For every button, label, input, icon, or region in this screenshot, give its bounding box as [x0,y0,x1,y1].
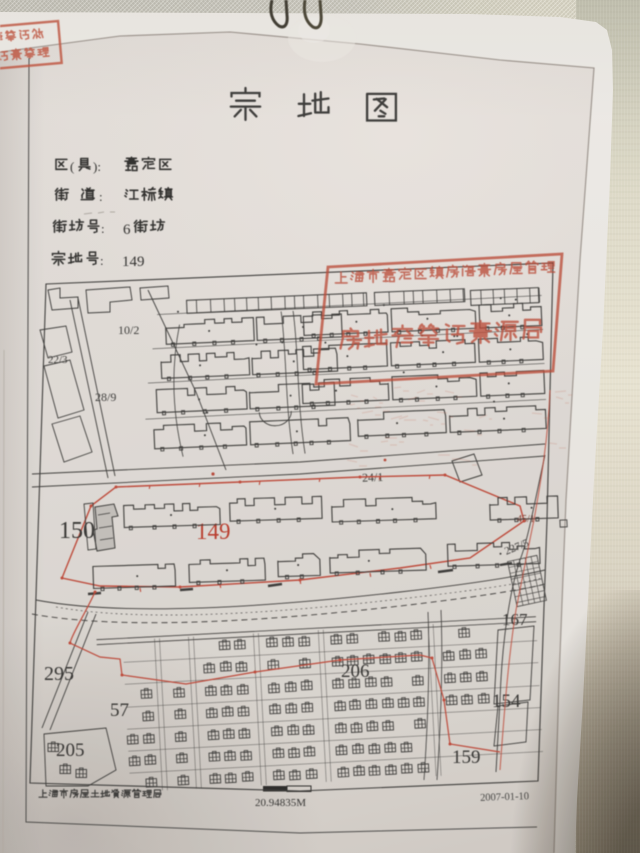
svg-text:295: 295 [44,663,74,685]
svg-text::: : [100,253,104,268]
svg-text:10/2: 10/2 [118,323,139,337]
svg-text:206: 206 [341,661,370,682]
svg-text:20.94835M: 20.94835M [255,797,306,809]
svg-text:57: 57 [110,700,129,721]
svg-text:149: 149 [122,254,145,270]
svg-text:150: 150 [59,518,95,544]
svg-text:205: 205 [56,740,85,761]
svg-text:22/3: 22/3 [48,354,68,366]
svg-text:):: ): [93,159,101,174]
svg-text::: : [101,221,105,236]
svg-text:149: 149 [196,519,231,544]
svg-text:(: ( [70,159,74,174]
svg-text:159: 159 [452,747,481,768]
svg-text:28/9: 28/9 [95,390,116,404]
svg-text:6: 6 [123,222,131,238]
svg-text::: : [99,189,103,204]
